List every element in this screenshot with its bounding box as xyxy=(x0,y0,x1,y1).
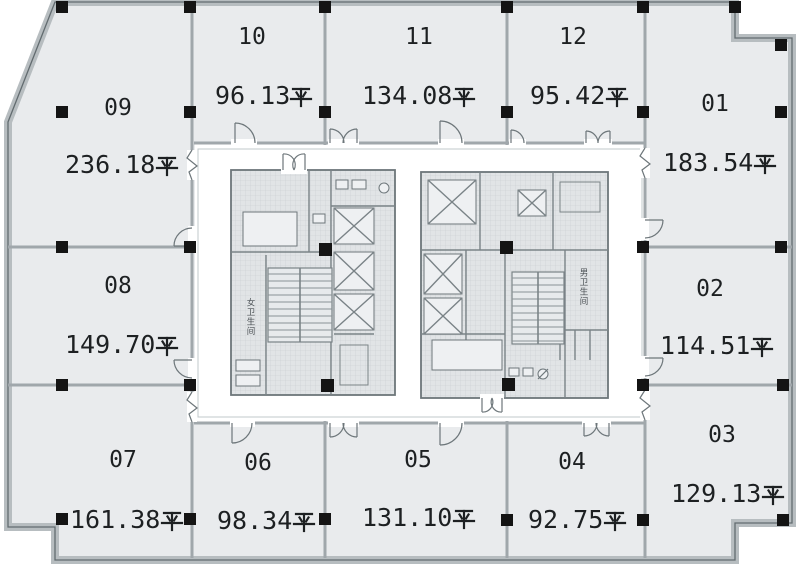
unit-number: 07 xyxy=(109,447,137,473)
column-marker xyxy=(56,513,68,525)
stairs-left xyxy=(268,268,332,342)
column-marker xyxy=(501,106,513,118)
elevator-shaft xyxy=(428,180,476,224)
column-marker xyxy=(637,241,649,253)
unit-area: 98.34 xyxy=(217,506,292,535)
core-left: 女卫生间 xyxy=(231,154,395,395)
column-marker xyxy=(637,514,649,526)
unit-number: 06 xyxy=(244,450,272,476)
column-marker xyxy=(319,513,331,525)
unit-area: 131.10 xyxy=(362,503,452,532)
machine-room-equipment xyxy=(243,212,297,246)
men-toilet-text: 男卫生间 xyxy=(578,268,588,306)
women-toilet-text: 女卫生间 xyxy=(245,297,255,336)
unit-number: 05 xyxy=(404,447,432,473)
floor-plan-page: 女卫生间 xyxy=(0,0,800,568)
core-right: 男卫生间 xyxy=(421,172,608,412)
toilet-label-right: 男卫生间 xyxy=(578,268,588,306)
column-marker xyxy=(775,106,787,118)
column-marker xyxy=(56,1,68,13)
unit-number: 01 xyxy=(701,91,729,117)
elevator-shafts-left xyxy=(334,208,374,330)
column-marker xyxy=(319,243,332,256)
floor-plan: 女卫生间 xyxy=(0,0,800,568)
unit-area: 96.13 xyxy=(215,81,290,110)
column-marker xyxy=(777,379,789,391)
column-marker xyxy=(321,379,334,392)
toilet-label-left: 女卫生间 xyxy=(245,297,255,336)
unit-area: 149.70 xyxy=(65,330,155,359)
column-marker xyxy=(637,106,649,118)
unit-area: 183.54 xyxy=(663,148,753,177)
column-marker xyxy=(56,379,68,391)
column-marker xyxy=(184,106,196,118)
unit-number: 09 xyxy=(104,95,132,121)
elevator-shaft xyxy=(424,254,462,294)
column-marker xyxy=(501,514,513,526)
unit-number: 10 xyxy=(238,24,266,50)
column-marker xyxy=(637,379,649,391)
column-marker xyxy=(775,39,787,51)
unit-area: 129.13 xyxy=(671,479,761,508)
unit-area: 95.42 xyxy=(530,81,605,110)
column-marker xyxy=(319,106,331,118)
unit-area: 114.51 xyxy=(660,331,750,360)
column-marker xyxy=(637,1,649,13)
unit-number: 03 xyxy=(708,422,736,448)
column-marker xyxy=(777,514,789,526)
elevator-shaft xyxy=(424,298,462,334)
unit-number: 11 xyxy=(405,24,433,50)
column-marker xyxy=(319,1,331,13)
column-marker xyxy=(184,241,196,253)
column-marker xyxy=(184,379,196,391)
unit-area: 236.18 xyxy=(65,150,155,179)
column-marker xyxy=(502,378,515,391)
column-marker xyxy=(501,1,513,13)
column-marker xyxy=(56,106,68,118)
column-marker xyxy=(184,513,196,525)
elevator-shaft xyxy=(334,252,374,290)
column-marker xyxy=(500,241,513,254)
column-marker xyxy=(775,241,787,253)
unit-area: 161.38 xyxy=(70,505,160,534)
unit-area: 92.75 xyxy=(528,505,603,534)
column-marker xyxy=(729,1,741,13)
column-marker xyxy=(56,241,68,253)
elevator-shaft xyxy=(334,208,374,244)
service-shaft xyxy=(518,190,546,216)
unit-number: 08 xyxy=(104,273,132,299)
unit-number: 04 xyxy=(558,449,586,475)
column-marker xyxy=(184,1,196,13)
unit-number: 12 xyxy=(559,24,587,50)
elevator-shaft xyxy=(334,294,374,330)
unit-number: 02 xyxy=(696,276,724,302)
stairs-right xyxy=(512,272,564,344)
unit-area: 134.08 xyxy=(362,81,452,110)
